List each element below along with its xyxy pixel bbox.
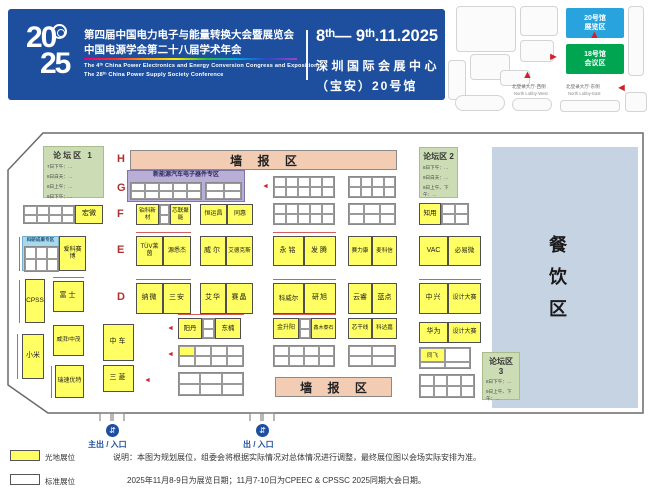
booth-biyiwei: 必易微 [448, 236, 481, 266]
forum2-title: 论坛区 2 [423, 151, 454, 162]
note-line-2: 2025年11月8-9日为展览日期；11月7-10日为CPEEC & CPSSC… [127, 475, 426, 486]
booth-cell [286, 177, 298, 187]
booth-group-B3 [348, 345, 396, 367]
booth-xiaomi: 小米 [22, 334, 44, 379]
aisle-arrow-icon: ◄ [144, 377, 151, 384]
booth-cell [384, 177, 396, 187]
legend-standard-swatch [10, 474, 40, 485]
booth-cell [300, 329, 310, 339]
booth-cell [179, 373, 200, 384]
dimension-line [419, 279, 481, 280]
forum-zone-2: 论坛区 2 8日下午：… 9日白天：… 9日上午、下午：… [419, 147, 458, 198]
row-letter-F: F [117, 208, 124, 220]
booth-cell [298, 177, 310, 187]
booth-cell [286, 204, 298, 214]
booth-cell [47, 259, 58, 271]
booth-micsig: 麦科信 [372, 236, 397, 266]
booth-yangdan: 阳丹 [178, 318, 202, 339]
booth-sanan: 三安 [163, 283, 191, 314]
booth-cell [274, 356, 289, 366]
booth-cell [37, 215, 50, 224]
row-letter-D: D [117, 291, 125, 303]
booth-aihua: 艾华 [200, 283, 226, 314]
booth-cell [380, 214, 395, 224]
booth-cell [224, 183, 242, 191]
booth-kewell: 科威尔 [273, 283, 304, 314]
booth-cell [286, 214, 298, 224]
booth-fuji: 富士 [53, 281, 84, 312]
booth-yuanxijie: 源悉杰 [163, 236, 191, 266]
forum1-line: 7日下午：… [47, 164, 100, 171]
booth-cell [49, 206, 62, 215]
booth-group-C-mini2 [299, 318, 311, 339]
booth-cell [173, 183, 187, 191]
booth-cell [159, 183, 173, 191]
booth-cell [304, 346, 319, 356]
booth-crrc: 中车 [103, 324, 134, 361]
booth-cell [274, 187, 286, 197]
booth-hongwei: 宏微 [75, 205, 103, 224]
booth-group-F4 [348, 203, 396, 225]
booth-cell [298, 187, 310, 197]
legend-raw-label: 光地展位 [45, 452, 75, 463]
booth-cpss: CPSS [25, 279, 45, 323]
booth-cell [420, 362, 445, 368]
booth-cell [227, 346, 243, 356]
forum-zone-3: 论坛区 3 8日下午：… 9日上午、下午：… [482, 352, 520, 400]
booth-cell [173, 191, 187, 199]
booth-cell [322, 177, 334, 187]
booth-design-contest-c: 设计大赛 [448, 322, 481, 343]
poster-wall-top: 墙 报 区 [130, 150, 397, 170]
booth-cell [206, 191, 224, 199]
research-zone: 科研成果专区 [22, 236, 59, 271]
booth-group-A2 [419, 374, 475, 398]
forum1-title: 论坛区 1 [47, 150, 100, 161]
booth-cell [24, 215, 37, 224]
booth-cell [322, 187, 334, 197]
booth-zhongxing: 中兴 [419, 283, 448, 314]
booth-saijing: 赛晶 [226, 283, 253, 314]
booth-cell [145, 183, 159, 191]
booth-cell [200, 373, 221, 384]
booth-cell [461, 386, 475, 397]
booth-group-F3 [273, 203, 335, 225]
booth-cell [211, 356, 227, 366]
booth-cell [187, 183, 201, 191]
dimension-line [17, 334, 18, 379]
booth-cell [203, 329, 214, 339]
booth-cell [447, 375, 461, 386]
dimension-line [273, 232, 336, 233]
booth-xinlianjuneng: 芯联聚能 [170, 204, 191, 225]
booth-group-G4 [348, 176, 396, 198]
booth-design-contest-d: 设计大赛 [448, 283, 481, 314]
dimension-line [136, 279, 191, 280]
booth-cell [160, 215, 169, 225]
booth-itech: 艾德克斯 [226, 236, 253, 266]
booth-cell [298, 204, 310, 214]
dimension-line [178, 314, 244, 315]
booth-group-B1 [178, 345, 244, 367]
booth-bokexincai: 铂科新材 [136, 204, 159, 225]
forum2-line: 9日上午、下午：… [423, 185, 454, 199]
booth-mornsun: 金升阳 [273, 318, 299, 339]
booth-cell [298, 214, 310, 224]
booth-cell [349, 177, 361, 187]
booth-yanxu: 研旭 [304, 283, 336, 314]
entrance-glyph: ⇵ [109, 426, 116, 435]
booth-cell [160, 205, 169, 215]
booth-cell [179, 384, 200, 395]
dimension-line [51, 366, 52, 398]
side-entrance-label: 出 / 入口 [243, 439, 274, 450]
booth-cell [289, 346, 304, 356]
booth-cell [442, 214, 455, 224]
booth-codaca: 科达嘉 [372, 318, 397, 339]
booth-group-F-left [23, 205, 75, 224]
booth-cell [203, 319, 214, 329]
aisle-arrow-icon: ◄ [167, 351, 174, 358]
research-zone-title: 科研成果专区 [23, 237, 58, 244]
booth-landian: 蓝点 [372, 283, 397, 314]
booth-yunrui: 云睿 [348, 283, 372, 314]
booth-cell [25, 247, 36, 259]
booth-cell [349, 214, 364, 224]
legend-raw-swatch [10, 450, 40, 461]
booth-cell [349, 346, 372, 356]
booth-group-B4: 同飞 [419, 347, 471, 369]
booth-cell [200, 384, 221, 395]
booth-cell [37, 206, 50, 215]
nev-zone-title: 新能源汽车电子器件专区 [128, 171, 244, 181]
entrance-icon: ⇵ [106, 424, 119, 437]
booth-group-G2 [205, 182, 242, 200]
dimension-line [273, 279, 336, 280]
booth-cell [62, 215, 75, 224]
entrance-glyph: ⇵ [259, 426, 266, 435]
booth-cell [384, 187, 396, 197]
dimension-line [19, 237, 20, 271]
booth-cell [445, 348, 470, 362]
booth-cell [349, 204, 364, 214]
dimension-line [53, 277, 84, 278]
forum1-line: 8日上午：… [47, 184, 100, 191]
booth-cell [445, 362, 470, 368]
booth-cell [349, 187, 361, 197]
aisle-arrow-icon: ◄ [167, 325, 174, 332]
booth-cell [420, 375, 434, 386]
booth-cell [274, 214, 286, 224]
booth-cell [227, 356, 243, 366]
booth-cell [289, 356, 304, 366]
booth-cell [310, 177, 322, 187]
booth-cell [461, 375, 475, 386]
booth-cell [455, 214, 468, 224]
booth-cell [187, 191, 201, 199]
booth-cell [179, 346, 195, 356]
booth-mitsubishi: 三菱 [103, 365, 134, 392]
forum1-line: 8日白天：… [47, 174, 100, 181]
booth-hengyunchang: 恒运昌 [200, 204, 227, 225]
booth-cell [364, 214, 379, 224]
booth-cell [224, 191, 242, 199]
booth-cell [211, 346, 227, 356]
forum-zone-1: 论坛区 1 7日下午：… 8日白天：… 8日上午：… 9日下午：… [43, 146, 104, 198]
booth-cell [304, 356, 319, 366]
booth-cell [49, 215, 62, 224]
booth-cell [319, 356, 334, 366]
dimension-line [136, 232, 191, 233]
booth-huawei: 华为 [419, 322, 448, 343]
booth-cell [447, 386, 461, 397]
main-entrance-label: 主出 / 入口 [88, 439, 127, 450]
row-letter-G: G [117, 182, 126, 194]
booth-group-F-mini [159, 204, 170, 225]
booth-cell [455, 204, 468, 214]
booth-cell [310, 204, 322, 214]
booth-cell [179, 356, 195, 366]
booth-cell [222, 373, 243, 384]
booth-zhiyong: 知用 [419, 203, 441, 225]
booth-tongfei: 同飞 [420, 348, 445, 362]
booth-group-B2 [273, 345, 335, 367]
booth-cell [206, 183, 224, 191]
forum3-line: 8日下午：… [486, 379, 516, 386]
booth-vac: VAC [419, 236, 448, 266]
dimension-line [273, 314, 336, 315]
booth-cell [195, 346, 211, 356]
booth-cell [24, 206, 37, 215]
booth-cell [434, 375, 448, 386]
booth-group-G1 [130, 182, 202, 200]
dimension-line [19, 280, 20, 323]
row-letter-E: E [117, 244, 124, 256]
booth-cell [380, 204, 395, 214]
booth-cell [286, 187, 298, 197]
booth-cell [372, 346, 395, 356]
booth-cell [434, 386, 448, 397]
booth-cell [195, 356, 211, 366]
booth-cell [322, 214, 334, 224]
booth-cell [47, 247, 58, 259]
booth-sailikang: 赛力康 [348, 236, 372, 266]
booth-cell [145, 191, 159, 199]
booth-fateng: 发腾 [304, 236, 336, 266]
booth-yongming: 永铭 [273, 236, 304, 266]
forum1-line: 9日下午：… [47, 194, 100, 201]
booth-cell [274, 204, 286, 214]
forum3-line: 9日上午、下午：… [486, 389, 516, 403]
booth-cell [361, 187, 373, 197]
booth-xinmutaishi: 鑫木泰石 [311, 318, 336, 339]
booth-cell [222, 384, 243, 395]
legend-standard-label: 标准展位 [45, 476, 75, 487]
booth-cell [25, 259, 36, 271]
booth-cell [274, 346, 289, 356]
entrance-icon: ⇵ [256, 424, 269, 437]
booth-cell [442, 204, 455, 214]
poster-wall-bottom: 墙 报 区 [275, 377, 392, 397]
booth-aikesaibo: 爱科赛博 [59, 236, 86, 271]
note-line-1: 说明：本图为规划展位，组委会将根据实际情况对总体情况进行调整，最终展位图以会场实… [113, 452, 481, 463]
booth-navitas: 纳微 [136, 283, 163, 314]
booth-cell [131, 183, 145, 191]
booth-cell [349, 356, 372, 366]
forum2-line: 9日白天：… [423, 175, 454, 182]
row-letter-H: H [117, 153, 125, 165]
booth-tuv: TÜV莱茵 [136, 236, 163, 266]
booth-cell [62, 206, 75, 215]
booth-cell [274, 177, 286, 187]
booth-cell [159, 191, 173, 199]
booth-cell [131, 191, 145, 199]
booth-ruisuyoute: 瑞速优特 [55, 365, 84, 398]
booth-dongnan: 东楠 [215, 318, 241, 339]
booth-cell [322, 204, 334, 214]
forum3-title: 论坛区 3 [486, 356, 516, 376]
booth-group-G3 [273, 176, 335, 198]
booth-cell [372, 187, 384, 197]
aisle-arrow-icon: ◄ [262, 183, 269, 190]
booth-group-C-mini1 [202, 318, 215, 339]
booth-cell [420, 386, 434, 397]
booth-group-A1 [178, 372, 244, 396]
booth-weipai-zhongmao: 威湃/中茂 [53, 325, 84, 356]
booth-cell [36, 259, 47, 271]
booth-cell [310, 187, 322, 197]
booth-cell [364, 204, 379, 214]
booth-cell [372, 177, 384, 187]
booth-cell [361, 177, 373, 187]
forum2-line: 8日下午：… [423, 165, 454, 172]
booth-tonghui: 同惠 [227, 204, 253, 225]
booth-cell [319, 346, 334, 356]
booth-cell [310, 214, 322, 224]
booth-xinganxian: 芯干线 [348, 318, 372, 339]
booth-cell [36, 247, 47, 259]
booth-cell [372, 356, 395, 366]
dining-area-label: 餐饮区 [544, 235, 570, 331]
booth-group-F5 [441, 203, 469, 225]
booth-group-research [24, 246, 59, 272]
booth-cell [300, 319, 310, 329]
booth-weier: 威尔 [200, 236, 226, 266]
